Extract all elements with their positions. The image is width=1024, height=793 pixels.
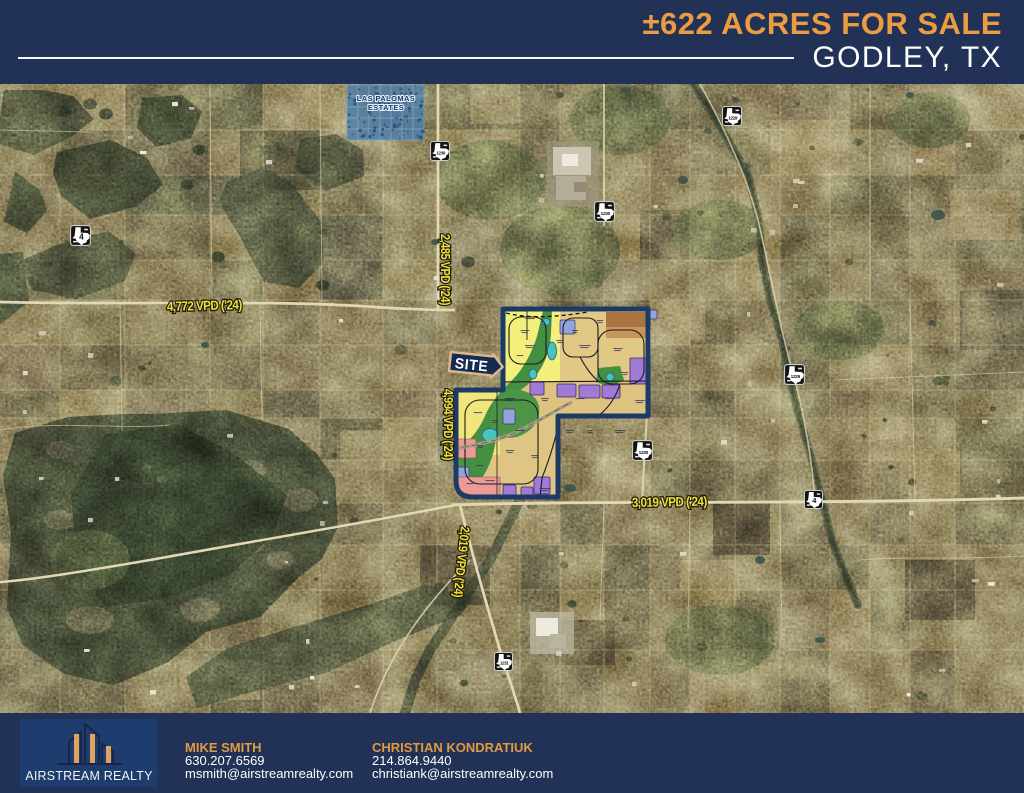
svg-text:1231: 1231: [500, 661, 509, 666]
svg-text:1229: 1229: [728, 115, 738, 120]
svg-text:LAS PALOMAS: LAS PALOMAS: [357, 94, 415, 103]
svg-text:ESTATES: ESTATES: [368, 103, 404, 112]
svg-text:2,485 VPD ('24): 2,485 VPD ('24): [438, 234, 453, 306]
svg-text:4,772 VPD ('24): 4,772 VPD ('24): [167, 297, 243, 314]
svg-text:1229: 1229: [791, 374, 801, 380]
svg-text:4: 4: [79, 233, 84, 242]
svg-text:4,994 VPD ('24): 4,994 VPD ('24): [441, 389, 456, 461]
svg-text:SITE: SITE: [454, 356, 489, 376]
svg-text:1230: 1230: [639, 450, 649, 456]
svg-text:3,019 VPD ('24): 3,019 VPD ('24): [632, 494, 707, 510]
svg-text:1230: 1230: [436, 150, 446, 155]
svg-text:1230: 1230: [601, 211, 611, 217]
